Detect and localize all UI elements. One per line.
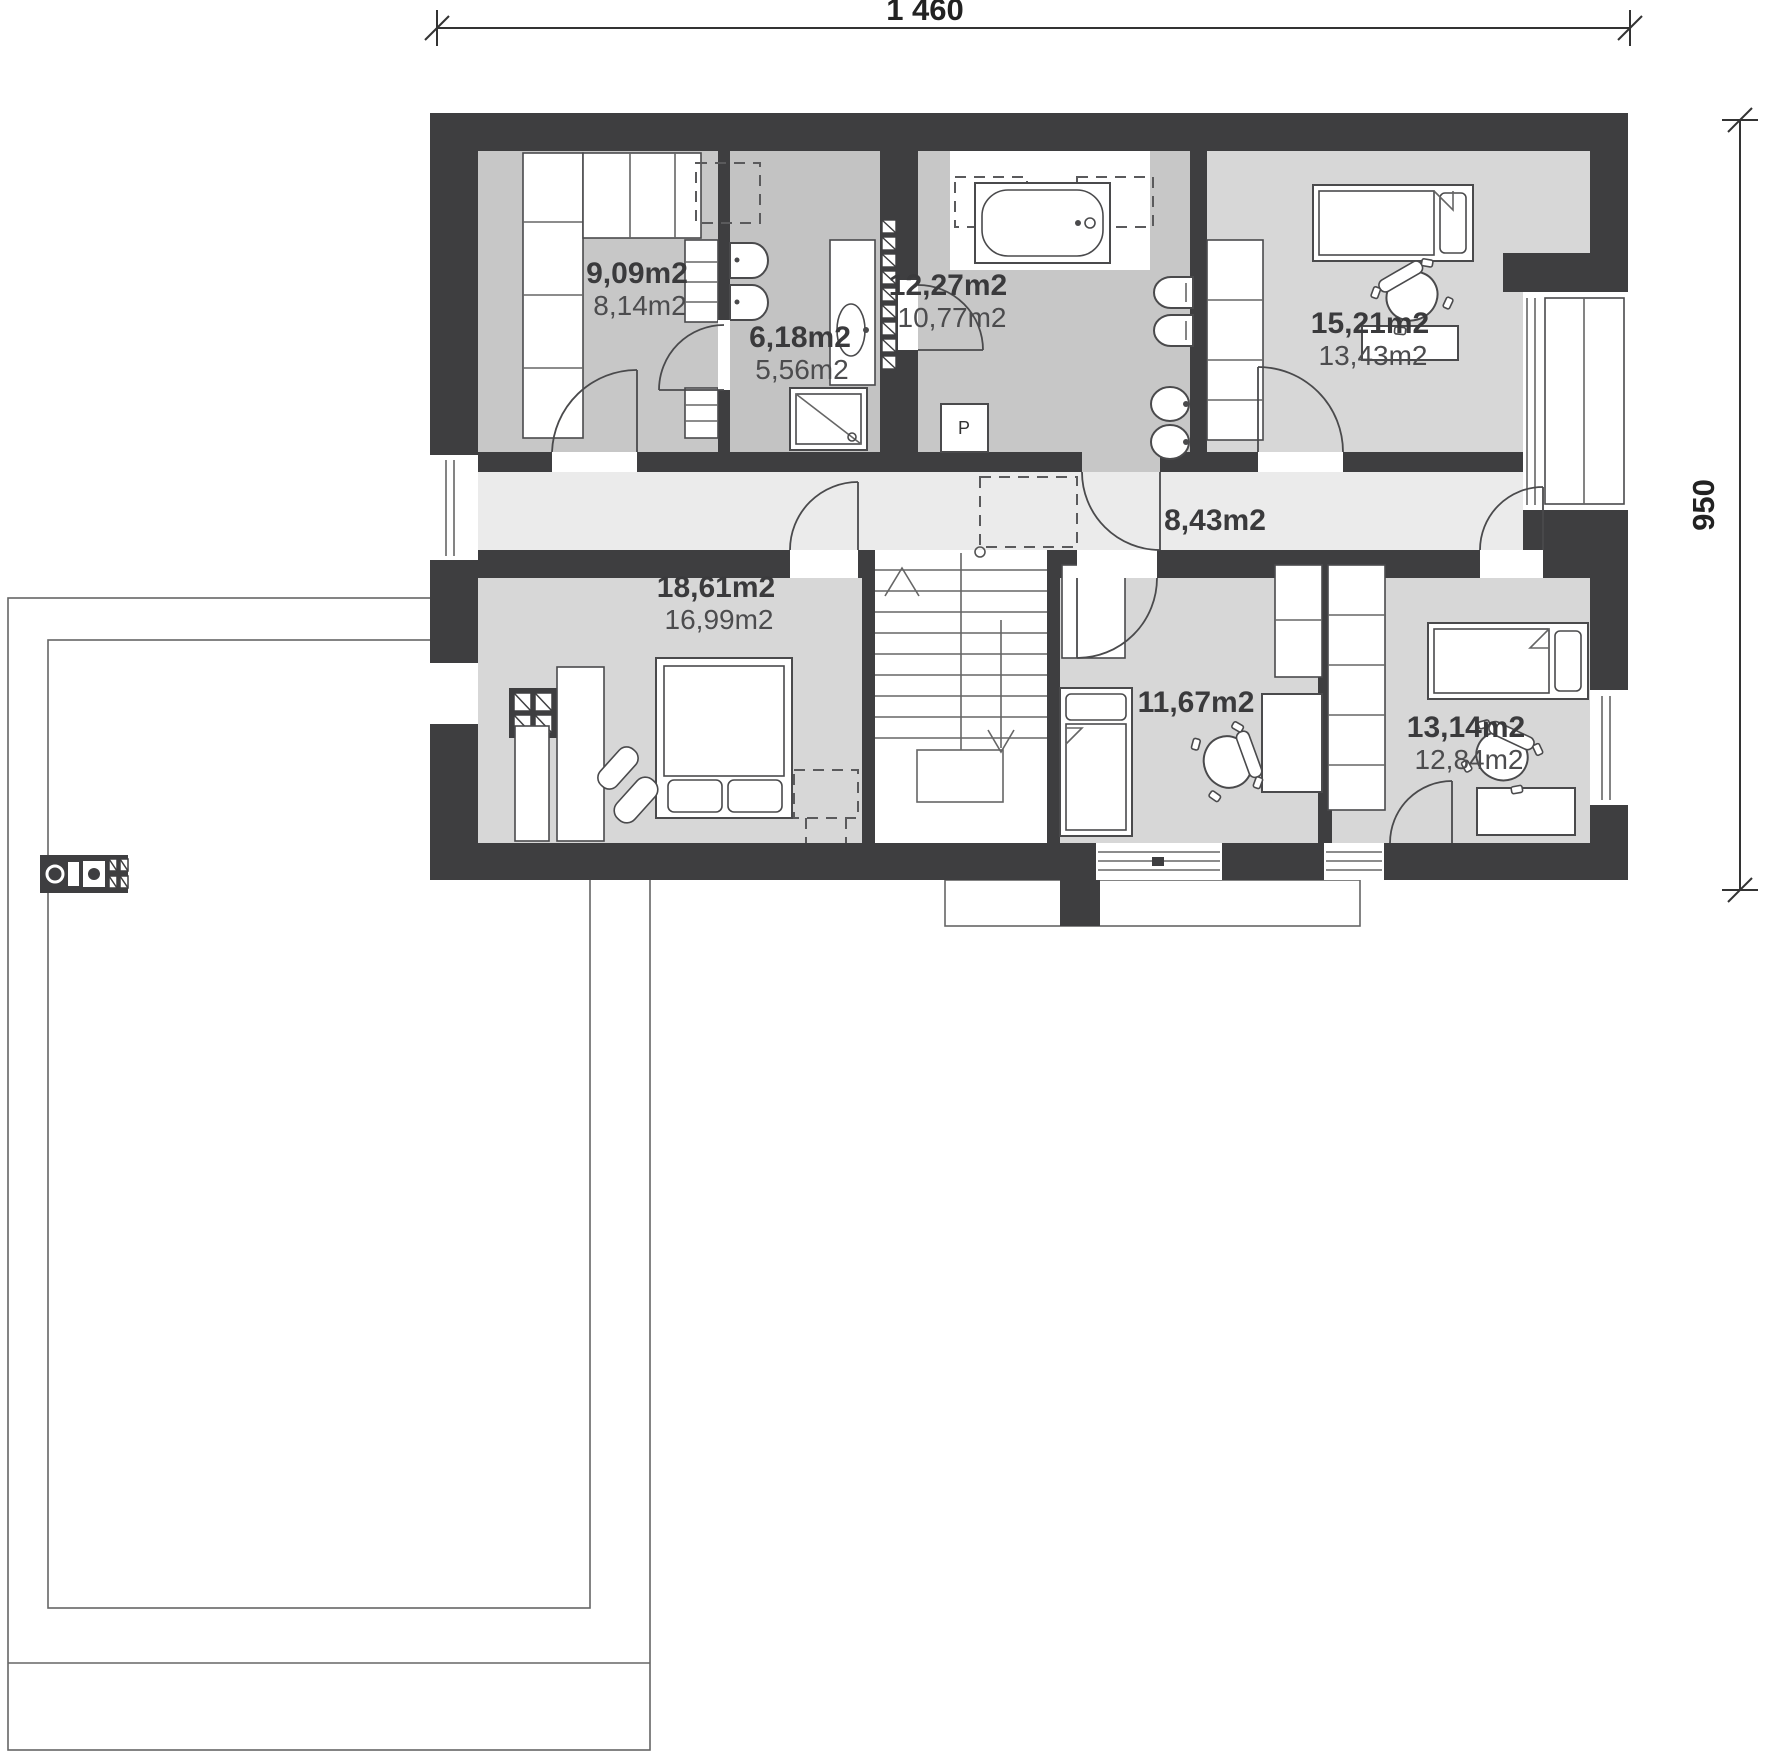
toilet bbox=[1154, 277, 1193, 308]
window-bottom-middle bbox=[1096, 843, 1222, 880]
label-wardrobe-room-floor: 8,14m2 bbox=[593, 290, 686, 321]
dimension-top: 1 460 bbox=[425, 0, 1642, 46]
window-right-upper-niche bbox=[1523, 292, 1628, 510]
label-bedroom-top-right-floor: 13,43m2 bbox=[1319, 340, 1428, 371]
desk-middle bbox=[1262, 694, 1322, 792]
window-right-lower bbox=[1590, 690, 1628, 805]
label-washroom-area: 6,18m2 bbox=[749, 321, 851, 354]
wall-left-mid bbox=[430, 560, 478, 663]
label-wardrobe-room-area: 9,09m2 bbox=[586, 257, 688, 290]
bed-middle bbox=[1060, 688, 1132, 836]
label-bedroom-bottom-right-floor: 12,84m2 bbox=[1415, 744, 1524, 775]
bed-bottom-right bbox=[1428, 623, 1588, 699]
desk-bottom-right bbox=[1477, 788, 1575, 835]
bidet bbox=[1154, 315, 1193, 346]
washer-label: P bbox=[958, 418, 970, 438]
window-bottom-right bbox=[1324, 843, 1384, 880]
washing-machine: P bbox=[941, 404, 988, 452]
shower bbox=[790, 388, 867, 450]
porch-outline bbox=[945, 880, 1360, 926]
label-washroom-floor: 5,56m2 bbox=[755, 354, 848, 385]
dimension-right: 950 bbox=[1686, 108, 1758, 902]
dimension-right-label: 950 bbox=[1686, 479, 1721, 531]
label-bedroom-bottom-right-area: 13,14m2 bbox=[1407, 711, 1525, 744]
wall-bottom-mid bbox=[1222, 843, 1324, 880]
label-bedroom-left-area: 18,61m2 bbox=[657, 571, 775, 604]
window-left bbox=[430, 455, 478, 560]
floor-plan-page: 1 460 950 bbox=[0, 0, 1768, 1760]
bathtub bbox=[975, 183, 1110, 263]
wall-right-lower bbox=[1590, 805, 1628, 880]
wall-top bbox=[430, 113, 1628, 151]
floor-plan-drawing: 1 460 950 bbox=[0, 0, 1768, 1760]
label-bedroom-middle-area: 11,67m2 bbox=[1138, 686, 1255, 719]
terrace-chimney bbox=[40, 855, 128, 893]
label-bathroom-floor: 10,77m2 bbox=[898, 302, 1007, 333]
floor-hallway bbox=[478, 472, 1523, 550]
bed-top-right bbox=[1313, 185, 1473, 261]
label-bedroom-left-floor: 16,99m2 bbox=[665, 604, 774, 635]
wall-niche-left bbox=[436, 663, 478, 724]
wall-right-step bbox=[1503, 253, 1628, 292]
label-bedroom-top-right-area: 15,21m2 bbox=[1311, 307, 1429, 340]
label-bathroom-area: 12,27m2 bbox=[889, 269, 1007, 302]
wall-bottom-left bbox=[430, 843, 1096, 880]
label-hallway-area: 8,43m2 bbox=[1164, 504, 1266, 537]
wall-left-upper bbox=[430, 113, 478, 455]
dimension-top-label: 1 460 bbox=[886, 0, 964, 27]
wall-right-mid bbox=[1590, 510, 1628, 690]
